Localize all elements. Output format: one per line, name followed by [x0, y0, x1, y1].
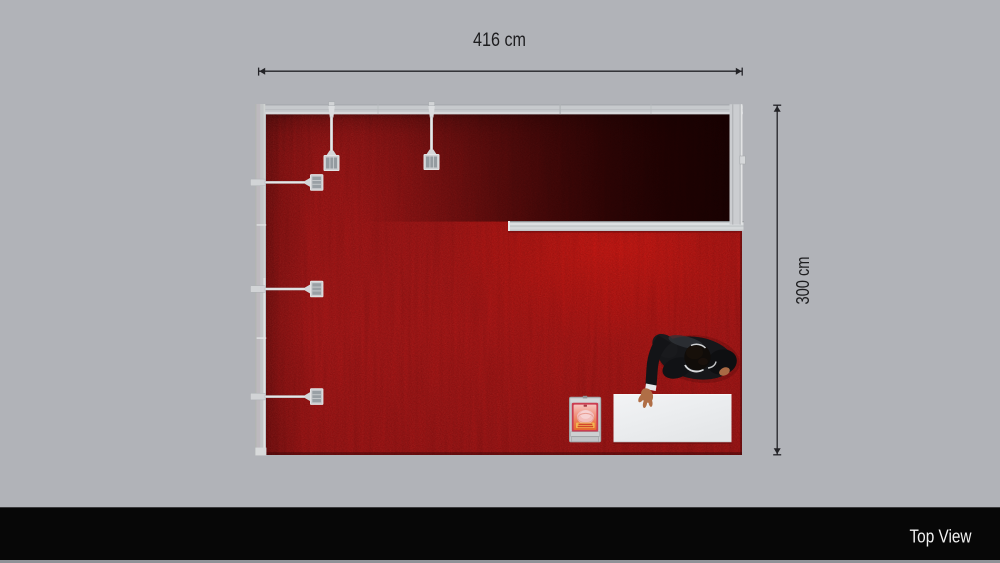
svg-text:300 cm: 300 cm — [793, 257, 813, 305]
svg-text:Top View: Top View — [910, 526, 973, 547]
svg-text:416 cm: 416 cm — [473, 30, 526, 51]
